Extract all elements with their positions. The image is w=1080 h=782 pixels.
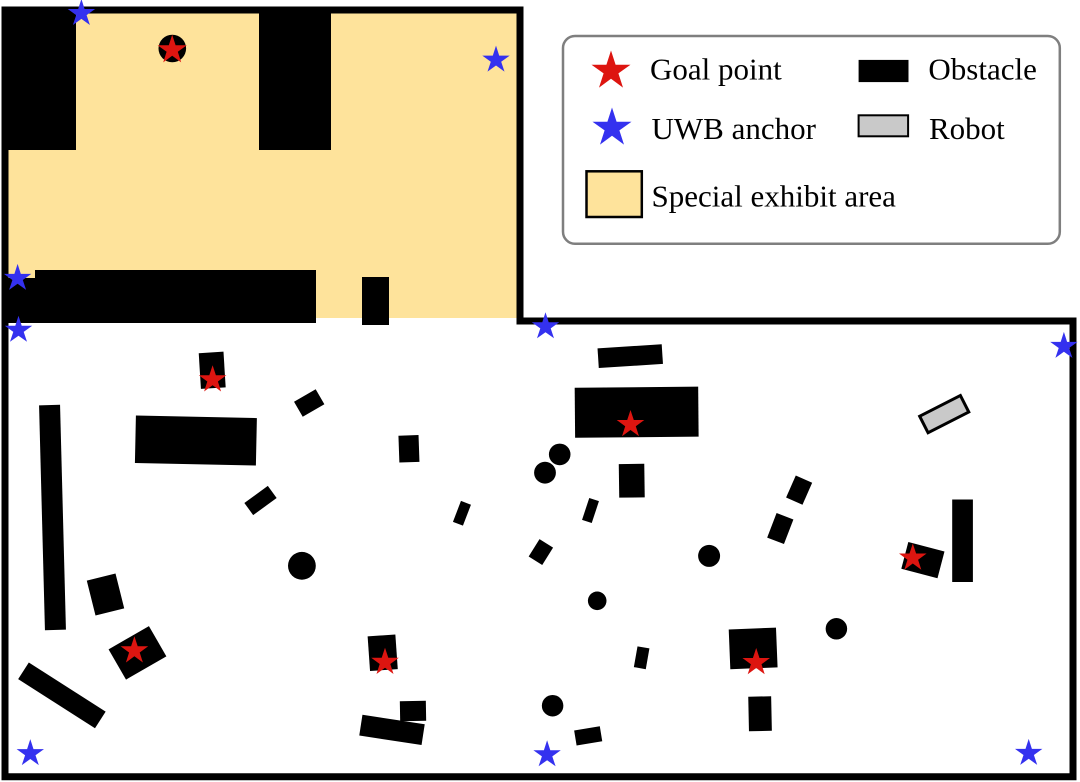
- svg-text:Obstacle: Obstacle: [928, 52, 1036, 87]
- svg-text:Robot: Robot: [929, 111, 1005, 146]
- svg-text:Goal point: Goal point: [650, 52, 782, 87]
- svg-text:UWB anchor: UWB anchor: [652, 111, 817, 146]
- svg-text:Special exhibit area: Special exhibit area: [652, 179, 897, 214]
